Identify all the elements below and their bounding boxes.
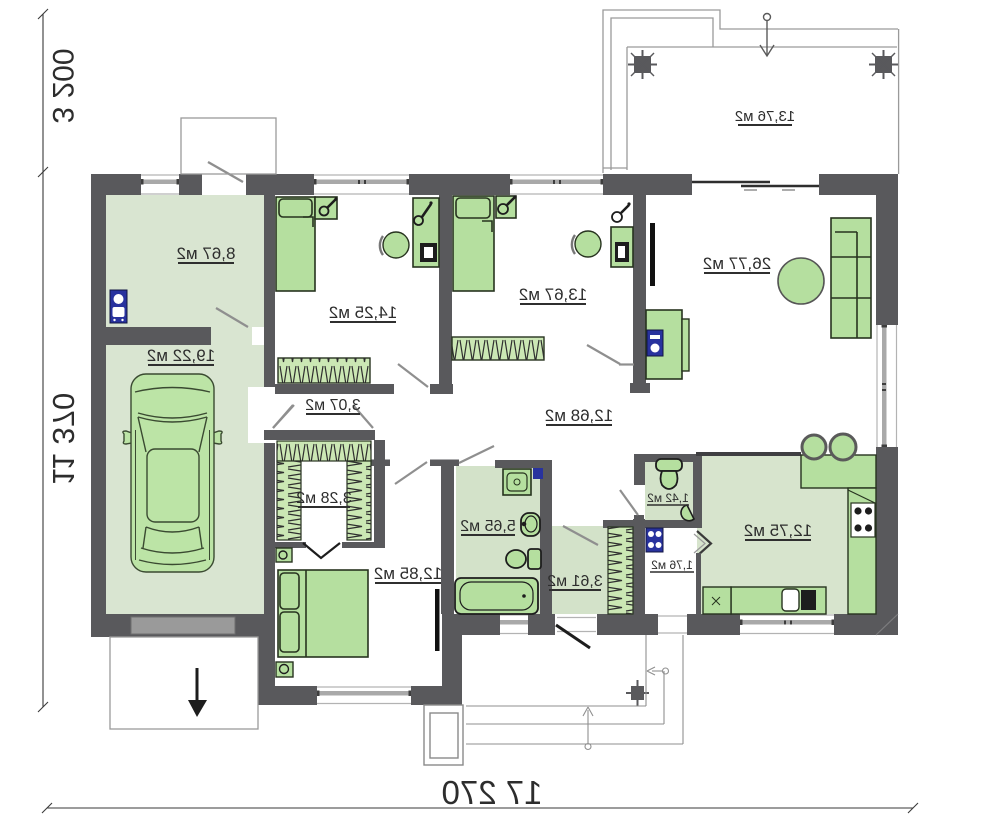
svg-text:19,22 м2: 19,22 м2 — [147, 346, 215, 365]
svg-text:1,76 м2: 1,76 м2 — [651, 558, 693, 572]
svg-text:3 200: 3 200 — [46, 48, 79, 123]
svg-text:14,25 м2: 14,25 м2 — [329, 303, 397, 322]
svg-text:3,28 м2: 3,28 м2 — [296, 490, 352, 507]
svg-text:3,07 м2: 3,07 м2 — [305, 397, 361, 414]
svg-text:26,77 м2: 26,77 м2 — [703, 254, 771, 273]
svg-text:13,67 м2: 13,67 м2 — [519, 285, 587, 304]
svg-text:12,75 м2: 12,75 м2 — [744, 521, 812, 540]
svg-text:12,68 м2: 12,68 м2 — [545, 406, 613, 425]
svg-text:12,85 м2: 12,85 м2 — [374, 564, 442, 583]
svg-text:17 270: 17 270 — [442, 774, 543, 811]
svg-text:1,42 м2: 1,42 м2 — [647, 491, 689, 505]
svg-text:13,76 м2: 13,76 м2 — [735, 108, 795, 125]
svg-text:3,61 м2: 3,61 м2 — [547, 573, 603, 590]
svg-text:11 370: 11 370 — [46, 393, 81, 486]
svg-text:5,65 м2: 5,65 м2 — [460, 518, 516, 535]
svg-text:8,67 м2: 8,67 м2 — [177, 244, 236, 263]
